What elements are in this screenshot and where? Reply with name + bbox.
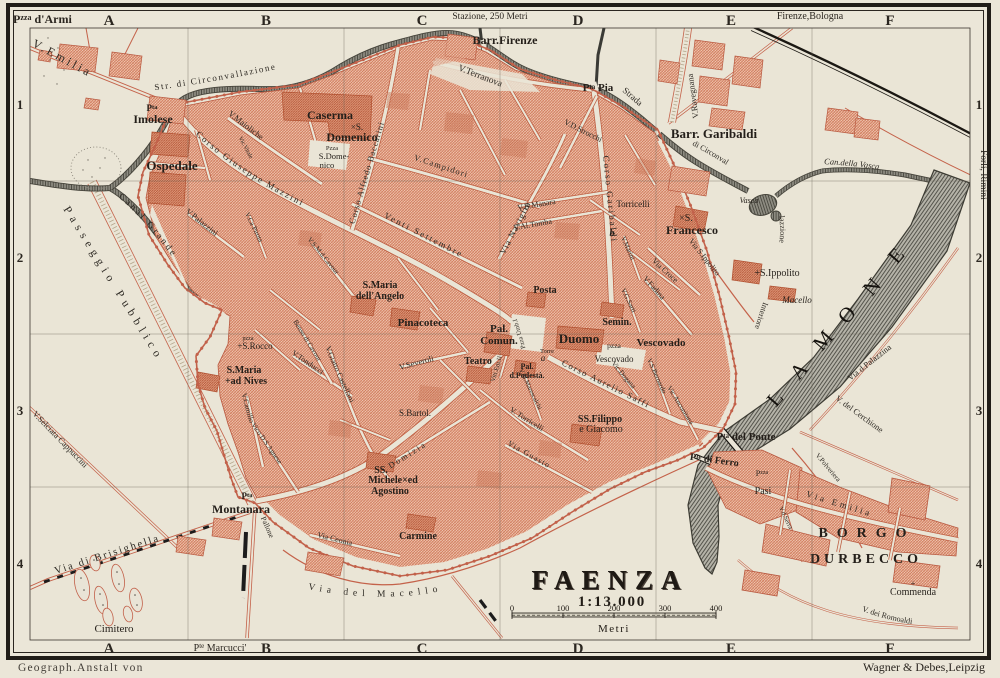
svg-text:F: F — [885, 641, 894, 657]
svg-text:D: D — [573, 13, 584, 29]
svg-text:dell'Angelo: dell'Angelo — [356, 291, 404, 302]
svg-text:B: B — [261, 641, 271, 657]
svg-text:Torricelli: Torricelli — [616, 199, 650, 209]
svg-text:4: 4 — [17, 556, 24, 571]
svg-text:d.Podestà.: d.Podestà. — [509, 371, 544, 380]
svg-text:DURBECCO: DURBECCO — [810, 552, 922, 567]
svg-text:Cimitero: Cimitero — [94, 623, 134, 635]
svg-text:Pal.: Pal. — [490, 323, 508, 335]
svg-text:Commenda: Commenda — [890, 587, 937, 598]
svg-text:BORGO: BORGO — [818, 526, 915, 541]
svg-text:+ad Nives: +ad Nives — [225, 376, 267, 387]
svg-text:FAENZA: FAENZA — [531, 565, 688, 595]
svg-text:D: D — [573, 641, 584, 657]
svg-text:Francesco: Francesco — [666, 223, 718, 237]
svg-text:Vasca: Vasca — [740, 196, 759, 205]
svg-text:Metri: Metri — [598, 623, 630, 635]
svg-text:E: E — [726, 13, 736, 29]
svg-text:Comun.: Comun. — [480, 335, 518, 347]
svg-text:Caserma: Caserma — [307, 108, 353, 122]
svg-text:B: B — [261, 13, 271, 29]
svg-text:200: 200 — [608, 603, 621, 613]
svg-text:lazzione: lazzione — [777, 215, 787, 244]
svg-text:Montanara: Montanara — [212, 502, 270, 516]
svg-text:Imolese: Imolese — [133, 112, 173, 126]
svg-text:S.Maria: S.Maria — [227, 365, 262, 376]
svg-text:1: 1 — [17, 97, 24, 112]
svg-text:Vescovado: Vescovado — [636, 337, 686, 349]
svg-text:Domenico: Domenico — [326, 130, 377, 144]
svg-text:A: A — [104, 641, 115, 657]
svg-text:3: 3 — [17, 403, 24, 418]
svg-text:Posta: Posta — [533, 285, 556, 296]
svg-text:+S.Ippolito: +S.Ippolito — [754, 268, 799, 279]
svg-text:b: b — [610, 228, 615, 239]
svg-text:Duomo: Duomo — [559, 331, 599, 346]
svg-text:Wagner & Debes,Leipzig: Wagner & Debes,Leipzig — [863, 660, 985, 674]
svg-text:1: 1 — [976, 97, 983, 112]
svg-text:+S.Rocco: +S.Rocco — [237, 341, 273, 351]
svg-text:Pal.: Pal. — [520, 362, 533, 371]
svg-text:Semin.: Semin. — [602, 317, 632, 328]
svg-text:nico: nico — [320, 160, 335, 170]
svg-text:Forlì, Rimini: Forlì, Rimini — [978, 150, 988, 200]
svg-text:S.Maria: S.Maria — [363, 280, 398, 291]
svg-text:pzza: pzza — [607, 341, 621, 350]
svg-text:300: 300 — [659, 603, 672, 613]
svg-text:2: 2 — [976, 250, 983, 265]
svg-text:Barr. Garibaldi: Barr. Garibaldi — [671, 126, 758, 141]
svg-text:Teatro: Teatro — [464, 356, 492, 367]
svg-text:Ospedale: Ospedale — [146, 158, 198, 173]
svg-text:F: F — [885, 13, 894, 29]
svg-text:E: E — [726, 641, 736, 657]
svg-text:Agostino: Agostino — [371, 486, 409, 497]
svg-text:e Giacomo: e Giacomo — [579, 424, 623, 435]
svg-text:Geograph.Anstalt von: Geograph.Anstalt von — [18, 662, 144, 674]
svg-text:Barr.Firenze: Barr.Firenze — [473, 33, 539, 47]
svg-text:4: 4 — [976, 556, 983, 571]
svg-text:Pta Pia: Pta Pia — [583, 82, 614, 94]
svg-text:Michele×ed: Michele×ed — [368, 475, 418, 486]
svg-text:A: A — [104, 13, 115, 29]
svg-text:3: 3 — [976, 403, 983, 418]
svg-text:Pasi: Pasi — [755, 486, 772, 497]
svg-text:2: 2 — [17, 250, 24, 265]
svg-text:Firenze,Bologna: Firenze,Bologna — [777, 11, 844, 22]
svg-text:a: a — [541, 353, 546, 363]
svg-text:Macello: Macello — [781, 295, 812, 305]
svg-text:S.Bartol.: S.Bartol. — [399, 408, 431, 418]
svg-text:C: C — [417, 641, 428, 657]
svg-text:100: 100 — [557, 603, 570, 613]
svg-text:Stazione, 250 Metri: Stazione, 250 Metri — [452, 12, 528, 22]
svg-text:C: C — [417, 13, 428, 29]
svg-text:Carmine: Carmine — [399, 531, 437, 542]
svg-text:Pinacoteca: Pinacoteca — [398, 317, 449, 329]
svg-text:Vescovado: Vescovado — [595, 354, 634, 364]
